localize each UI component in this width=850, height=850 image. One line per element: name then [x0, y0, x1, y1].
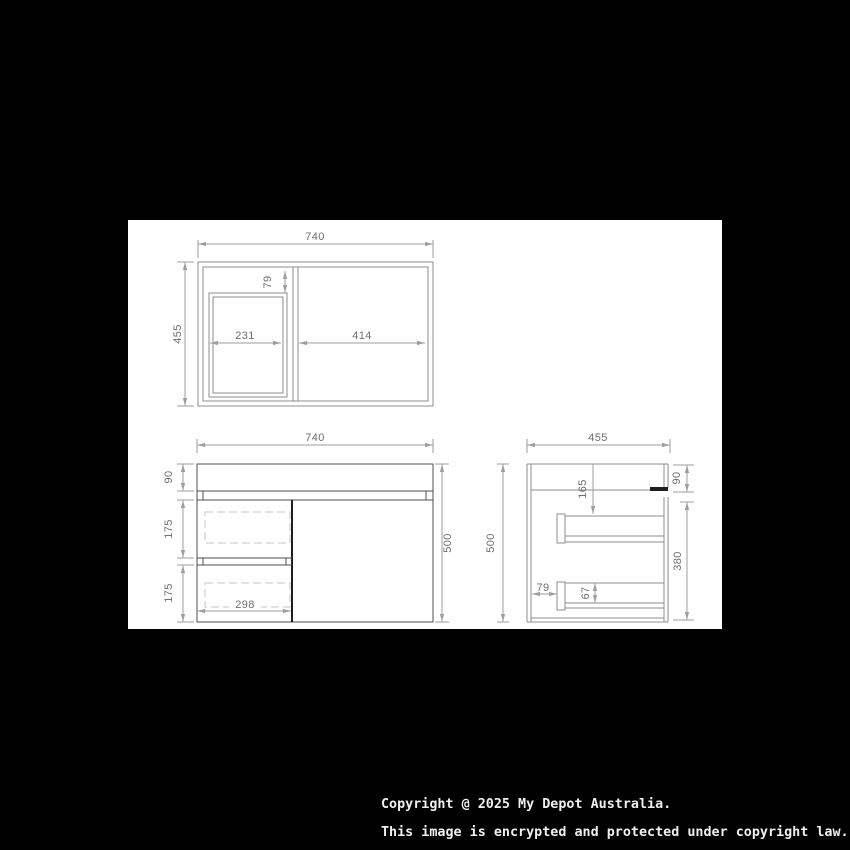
front-drawer1-height-dim-label: 175 [163, 519, 175, 539]
plan-view-dimensions: 740 455 79 231 414 [172, 231, 433, 406]
front-height-dim-label: 500 [442, 533, 454, 553]
side-drawer-front-height-dim-label: 67 [580, 586, 592, 599]
side-drawer-inset-dim-label: 79 [536, 582, 549, 594]
side-top-height-dim-label: 90 [671, 471, 683, 484]
side-view-outline [527, 464, 668, 622]
front-drawer2-height-dim-label: 175 [163, 583, 175, 603]
plan-cabinet-outline [198, 262, 433, 406]
side-view-dimensions: 455 500 90 380 165 79 67 [485, 432, 694, 622]
plan-width-dim-label: 740 [305, 231, 325, 243]
plan-basin-cutout-inner [213, 297, 283, 393]
side-view: 455 500 90 380 165 79 67 [485, 432, 694, 622]
front-drawer-width-dim-label: 298 [235, 599, 255, 611]
side-drawer-offset-dim-label: 165 [577, 479, 589, 499]
front-view-outline [197, 464, 433, 622]
copyright-line: Copyright @ 2025 My Depot Australia. [381, 797, 671, 812]
drawing-panel: 740 455 79 231 414 [128, 220, 722, 629]
front-top-height-dim-label: 90 [163, 470, 175, 483]
side-drawer2-front-section [557, 582, 565, 610]
vanity-dimension-drawing: 740 455 79 231 414 [128, 220, 722, 629]
front-view: 740 90 175 175 500 298 [163, 432, 454, 622]
plan-depth-dim-label: 455 [172, 324, 184, 344]
front-view-dimensions: 740 90 175 175 500 298 [163, 432, 454, 622]
plan-basin-width-dim-label: 231 [235, 330, 255, 342]
side-body-height-dim-label: 380 [672, 551, 684, 571]
plan-view: 740 455 79 231 414 [172, 231, 433, 406]
front-width-dim-label: 740 [305, 432, 325, 444]
copyright-protection-line: This image is encrypted and protected un… [381, 825, 849, 840]
front-drawer1-hidden-outline [205, 512, 290, 543]
side-depth-dim-label: 455 [588, 432, 608, 444]
side-height-dim-label: 500 [485, 533, 497, 553]
plan-view-outline [198, 262, 433, 406]
side-drawer1-front-section [557, 514, 565, 543]
page-background: { "plan_view": { "width": "740", "depth"… [0, 0, 850, 850]
plan-right-section-dim-label: 414 [352, 330, 372, 342]
plan-basin-inset-dim-label: 79 [262, 275, 274, 288]
plan-basin-cutout [209, 293, 287, 397]
